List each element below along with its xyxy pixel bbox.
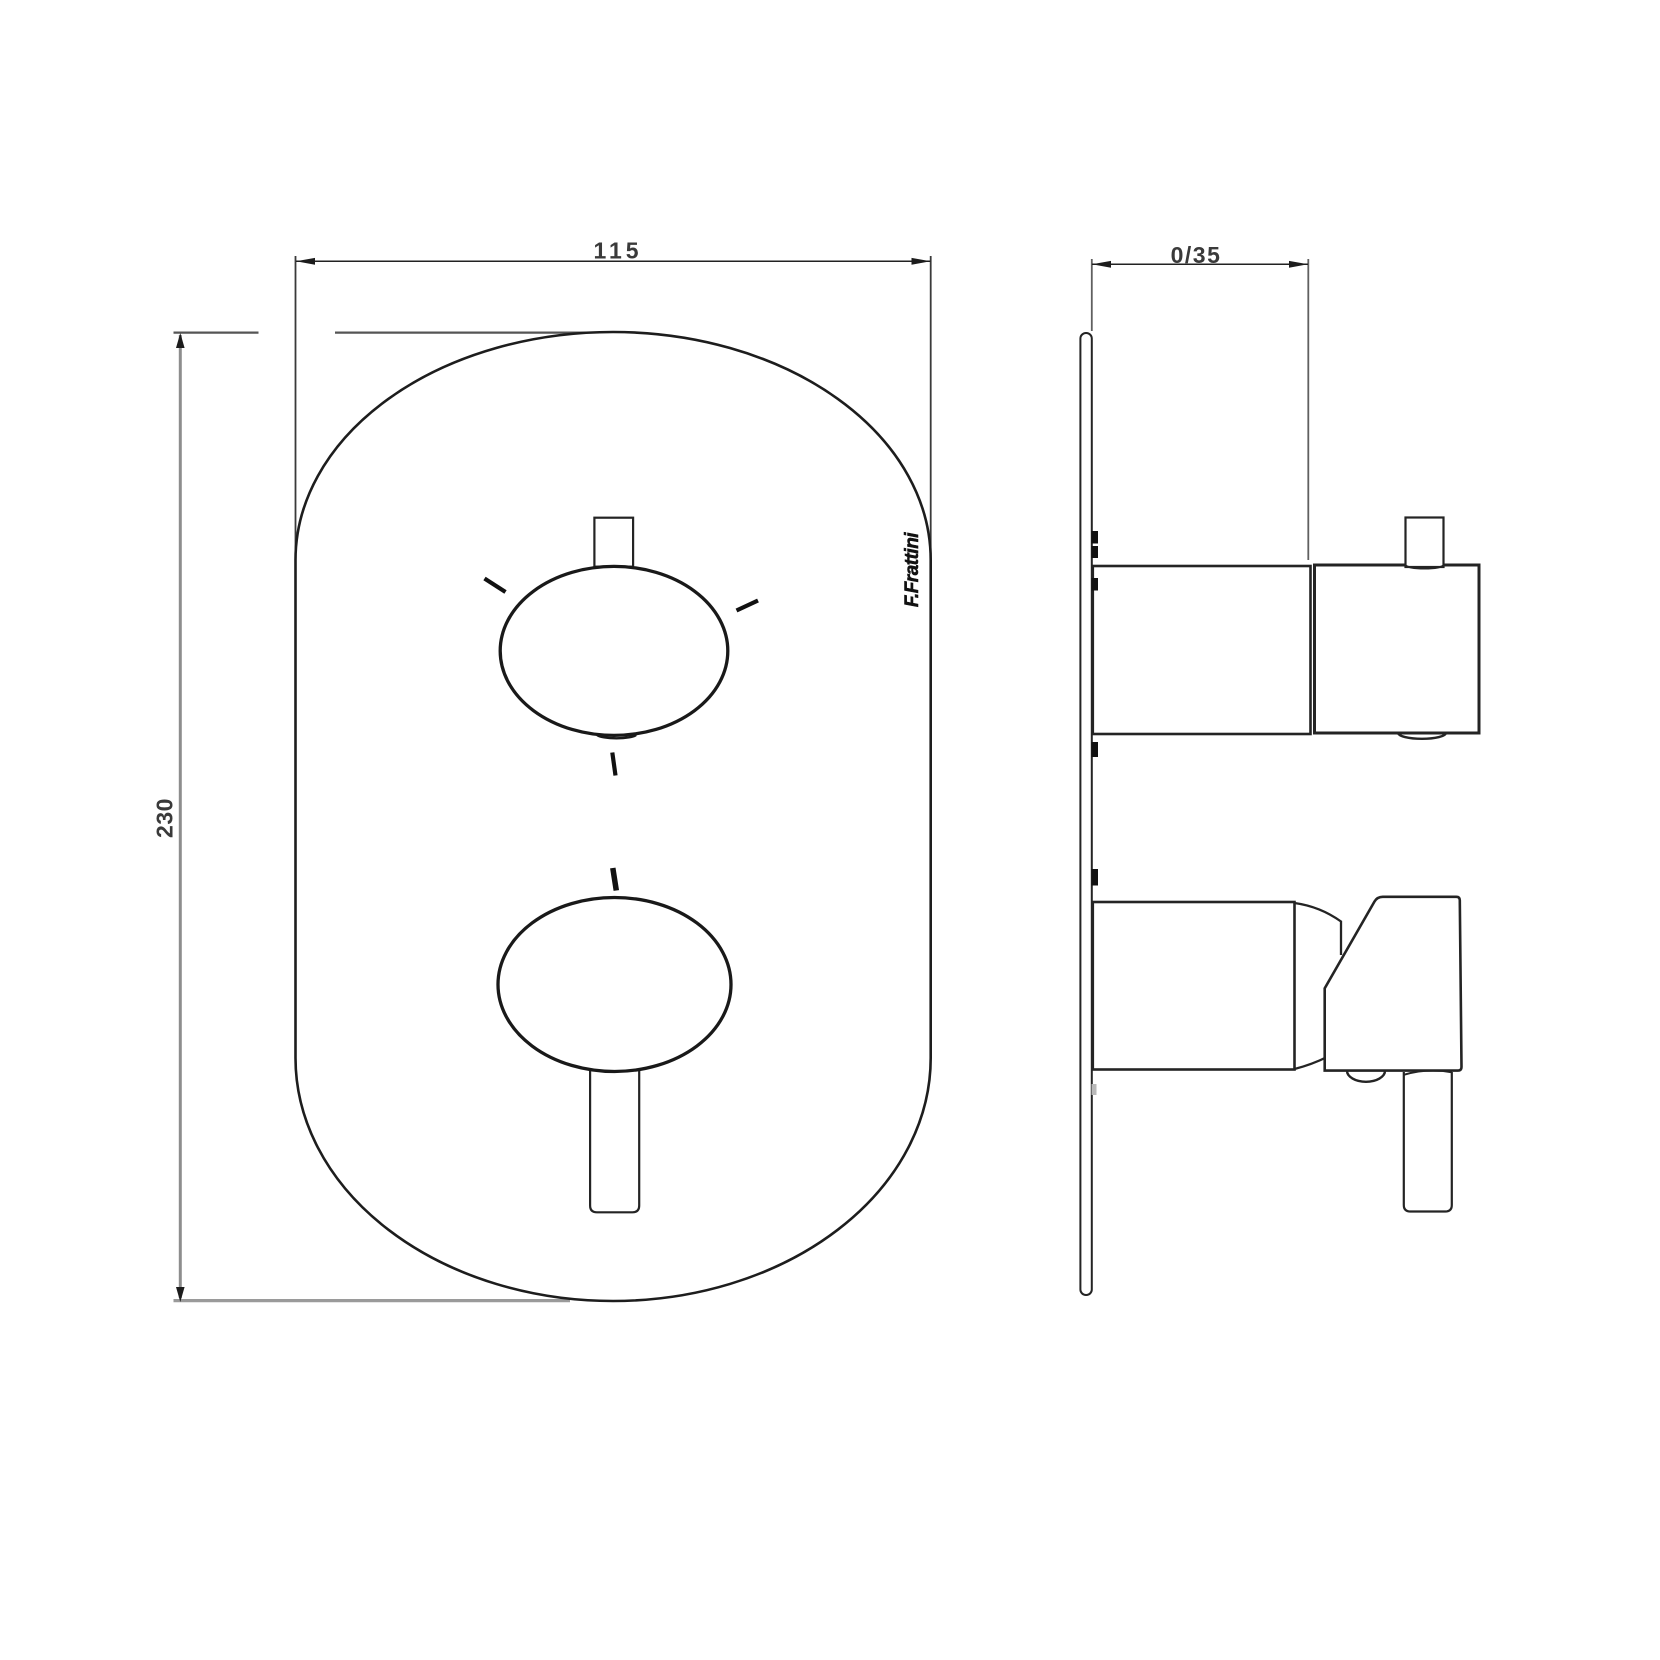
svg-text:230: 230 bbox=[152, 798, 178, 838]
svg-text:F.Frattini: F.Frattini bbox=[902, 532, 923, 607]
svg-text:0/35: 0/35 bbox=[1171, 242, 1222, 268]
svg-text:115: 115 bbox=[593, 238, 642, 264]
